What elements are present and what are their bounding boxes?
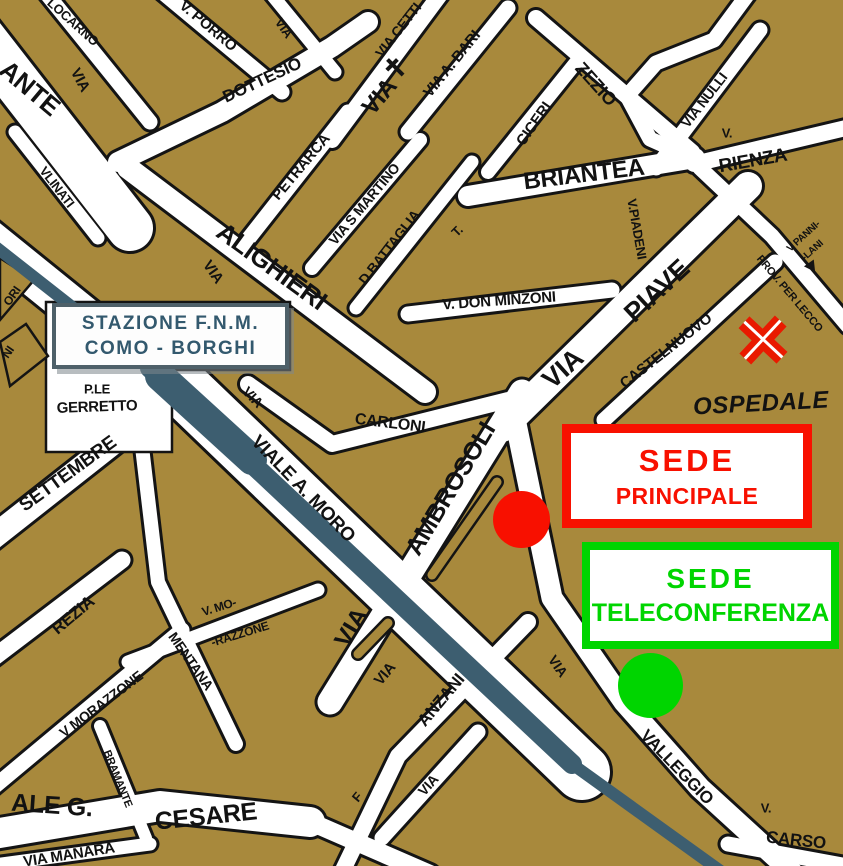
street-label-castelnuovo: CASTELNUOVO [617, 311, 714, 392]
sede-principale-subtitle: PRINCIPALE [616, 483, 759, 510]
street-label-carso: CARSO [765, 828, 826, 851]
street-label-cesare: CESARE [154, 799, 258, 835]
street-label-ospedale: OSPEDALE [692, 388, 829, 419]
station-line2: COMO - BORGHI [85, 338, 257, 360]
street-label-ori_partial: ORI [1, 284, 23, 308]
street-label-ciceri: CICERI [514, 100, 554, 149]
street-label-settembre: SETTEMBRE [16, 433, 120, 516]
sede-teleconferenza-subtitle: TELECONFERENZA [592, 599, 830, 628]
street-label-via: VIA [372, 660, 399, 688]
street-label-v_mo: V. MO- [200, 596, 237, 618]
street-label-don_minzoni: V. DON MINZONI [442, 290, 556, 313]
street-label-via_manara: VIA MANARA [22, 840, 115, 866]
street-label-viale_g: ALE G. [10, 791, 93, 822]
street-label-viale_a_moro: VIALE A. MORO [248, 432, 359, 546]
street-label-briantea: BRIANTEA [522, 156, 646, 195]
street-label-rienza: RIENZA [717, 146, 788, 177]
street-label-via: VIA [68, 66, 93, 94]
street-label-piadeni: V.PIADENI [625, 198, 648, 260]
street-label-ple: P.LE [84, 383, 110, 396]
station-line1: STAZIONE F.N.M. [82, 313, 259, 335]
street-label-v_abbrev: V. [722, 127, 733, 140]
sede-teleconferenza-title: SEDE [666, 563, 754, 595]
street-label-v_abbrev: V. [761, 802, 772, 815]
street-label-dottesio: DOTTESIO [220, 54, 304, 105]
street-label-via: VIA [200, 258, 226, 286]
street-label-ante: ANTE [0, 56, 65, 121]
street-label-f_partial: F [350, 790, 365, 804]
sede-principale-marker [493, 491, 550, 548]
street-label-rezia: REZIA [49, 593, 98, 638]
street-label-ambrosoli: AMBROSOLI [402, 418, 501, 560]
street-label-razzone: -RAZZONE [210, 620, 270, 649]
street-label-via_nulli: VIA NULLI [678, 70, 729, 130]
street-label-via_cetti: VIA CETTI [373, 0, 424, 59]
street-label-alighieri: ALIGHIERI [212, 218, 331, 315]
sede-principale-title: SEDE [639, 443, 735, 479]
street-label-zezio: ZEZIO [572, 59, 620, 109]
street-label-piave: PIAVE [619, 255, 694, 328]
street-label-mentana: MENTANA [166, 630, 216, 693]
street-label-via: VIA [546, 653, 570, 679]
street-label-petrarca: PETRARCA [269, 131, 333, 203]
street-label-locarno: LOCARNO [45, 0, 101, 48]
street-label-via_a_bari: VIA A. BARI [421, 28, 483, 100]
street-label-via: VIA [538, 344, 589, 394]
street-label-gerretto: GERRETTO [56, 398, 137, 416]
city-map: ANTELOCARNOVIAV. PORROVIADOTTESIOVIAVIA … [0, 0, 843, 866]
station-label-box: STAZIONE F.N.M. COMO - BORGHI [52, 303, 289, 369]
street-label-d_battaglia: D.BATTAGLIA [356, 207, 422, 286]
street-label-via: VIA [240, 384, 266, 410]
sede-principale-box: SEDE PRINCIPALE [562, 424, 812, 528]
street-label-vlinati: VLINATI [37, 164, 76, 209]
street-label-via: VIA [273, 16, 296, 40]
street-label-bramante: BRAMANTE [101, 749, 134, 809]
street-label-carloni: CARLONI [354, 412, 426, 437]
sede-teleconferenza-marker [618, 653, 683, 718]
street-label-t_abbrev: T. [449, 223, 465, 239]
street-label-v_morazzone: V MORAZZONE [57, 668, 145, 739]
street-label-ni_partial: NI [0, 344, 16, 360]
street-label-via: VIA [331, 604, 373, 652]
street-label-via: VIA [415, 772, 440, 798]
street-label-valleggio: VALLEGGIO [637, 727, 716, 808]
street-label-porro: V. PORRO [177, 0, 240, 54]
sede-teleconferenza-box: SEDE TELECONFERENZA [582, 542, 839, 649]
street-label-anzani: ANZANI [414, 671, 467, 730]
